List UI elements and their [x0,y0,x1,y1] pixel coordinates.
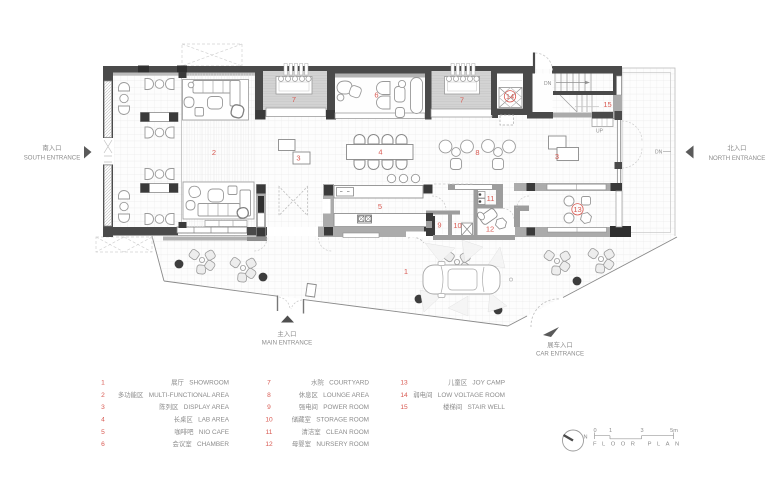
svg-text:1: 1 [609,428,612,434]
svg-text:14: 14 [506,92,514,101]
svg-text:多功能区 MULTI-FUNCTIONAL AREA: 多功能区 MULTI-FUNCTIONAL AREA [118,390,230,399]
svg-text:1: 1 [101,380,105,387]
svg-text:休息区 LOUNGE AREA: 休息区 LOUNGE AREA [299,390,370,399]
svg-text:长桌区 LAB AREA: 长桌区 LAB AREA [174,415,230,424]
svg-text:MAIN ENTRANCE: MAIN ENTRANCE [262,340,312,347]
svg-text:FLOOR PLAN: FLOOR PLAN [593,442,685,448]
svg-text:SOUTH ENTRANCE: SOUTH ENTRANCE [24,155,81,162]
svg-text:13: 13 [400,380,408,387]
svg-text:UP: UP [596,129,604,135]
svg-text:楼梯间 STAIR WELL: 楼梯间 STAIR WELL [443,402,505,411]
svg-text:展车入口: 展车入口 [547,340,573,349]
svg-text:15: 15 [400,404,408,411]
svg-text:7: 7 [267,380,271,387]
svg-text:展厅 SHOWROOM: 展厅 SHOWROOM [171,379,229,387]
svg-text:1: 1 [404,267,408,276]
svg-text:9: 9 [437,221,441,230]
svg-text:咖啡吧 NIO CAFE: 咖啡吧 NIO CAFE [174,427,229,436]
svg-text:8: 8 [475,148,479,157]
svg-text:北入口: 北入口 [727,144,746,152]
svg-text:4: 4 [378,148,382,157]
svg-text:10: 10 [265,417,273,424]
svg-text:9: 9 [267,404,271,411]
svg-text:15: 15 [603,100,611,109]
svg-text:3: 3 [555,152,559,161]
svg-text:强电间 POWER ROOM: 强电间 POWER ROOM [299,402,369,411]
svg-text:DN: DN [544,81,552,87]
svg-text:3: 3 [296,154,300,163]
svg-text:7: 7 [292,95,296,104]
svg-text:12: 12 [265,441,273,448]
svg-text:2: 2 [212,148,216,157]
svg-text:清洁室 CLEAN ROOM: 清洁室 CLEAN ROOM [302,427,369,436]
svg-text:5: 5 [101,429,105,436]
svg-text:10: 10 [453,221,461,230]
svg-text:DN: DN [655,150,663,156]
svg-text:6: 6 [374,91,378,100]
svg-text:母婴室 NURSERY ROOM: 母婴室 NURSERY ROOM [292,439,369,448]
svg-text:12: 12 [486,225,494,234]
svg-text:11: 11 [266,429,273,436]
svg-text:儿童区 JOY CAMP: 儿童区 JOY CAMP [448,378,505,387]
svg-text:陈列区 DISPLAY AREA: 陈列区 DISPLAY AREA [159,402,229,411]
svg-text:南入口: 南入口 [42,143,61,152]
svg-text:8: 8 [267,392,271,399]
svg-text:2: 2 [101,392,105,399]
svg-text:3: 3 [640,428,643,434]
svg-text:NORTH ENTRANCE: NORTH ENTRANCE [709,155,766,162]
svg-text:14: 14 [400,392,408,399]
svg-text:5: 5 [378,202,382,211]
svg-text:会议室 CHAMBER: 会议室 CHAMBER [173,439,230,448]
svg-text:储藏室 STORAGE ROOM: 储藏室 STORAGE ROOM [292,415,369,424]
svg-text:7: 7 [460,96,464,105]
svg-text:3: 3 [101,404,105,411]
svg-text:弱电间 LOW VOLTAGE ROOM: 弱电间 LOW VOLTAGE ROOM [413,390,505,399]
svg-text:CAR ENTRANCE: CAR ENTRANCE [536,351,584,358]
svg-text:13: 13 [573,205,581,214]
svg-text:5m: 5m [670,428,678,434]
svg-text:主入口: 主入口 [277,329,296,338]
svg-text:4: 4 [101,417,105,424]
svg-text:6: 6 [101,441,105,448]
svg-text:0: 0 [593,428,596,434]
svg-text:N: N [584,435,588,441]
svg-text:11: 11 [487,194,495,203]
svg-text:水院 COURTYARD: 水院 COURTYARD [311,378,369,387]
